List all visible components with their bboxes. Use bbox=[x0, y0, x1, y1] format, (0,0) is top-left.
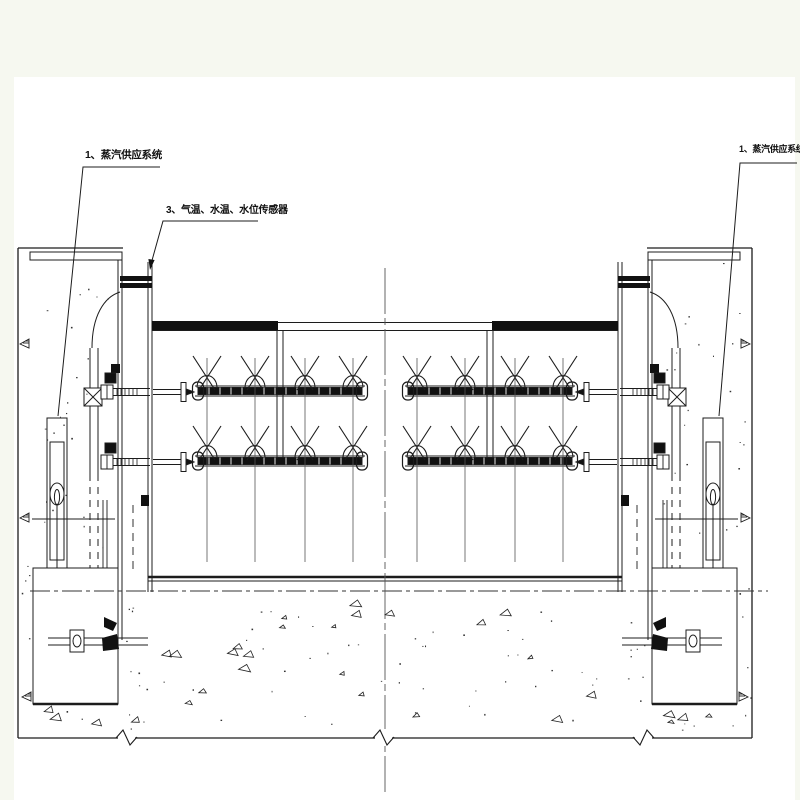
drawing-page: 1、蒸汽供应系统 3、气温、水温、水位传感器 1、蒸汽供应系统 bbox=[0, 0, 800, 800]
label-steam-supply-right: 1、蒸汽供应系统 bbox=[739, 143, 800, 154]
label-steam-supply-left: 1、蒸汽供应系统 bbox=[85, 148, 163, 161]
label-sensors: 3、气温、水温、水位传感器 bbox=[166, 203, 289, 216]
section-drawing-canvas: 1、蒸汽供应系统 3、气温、水温、水位传感器 1、蒸汽供应系统 bbox=[0, 0, 800, 800]
ground-break-symbol bbox=[373, 729, 394, 746]
